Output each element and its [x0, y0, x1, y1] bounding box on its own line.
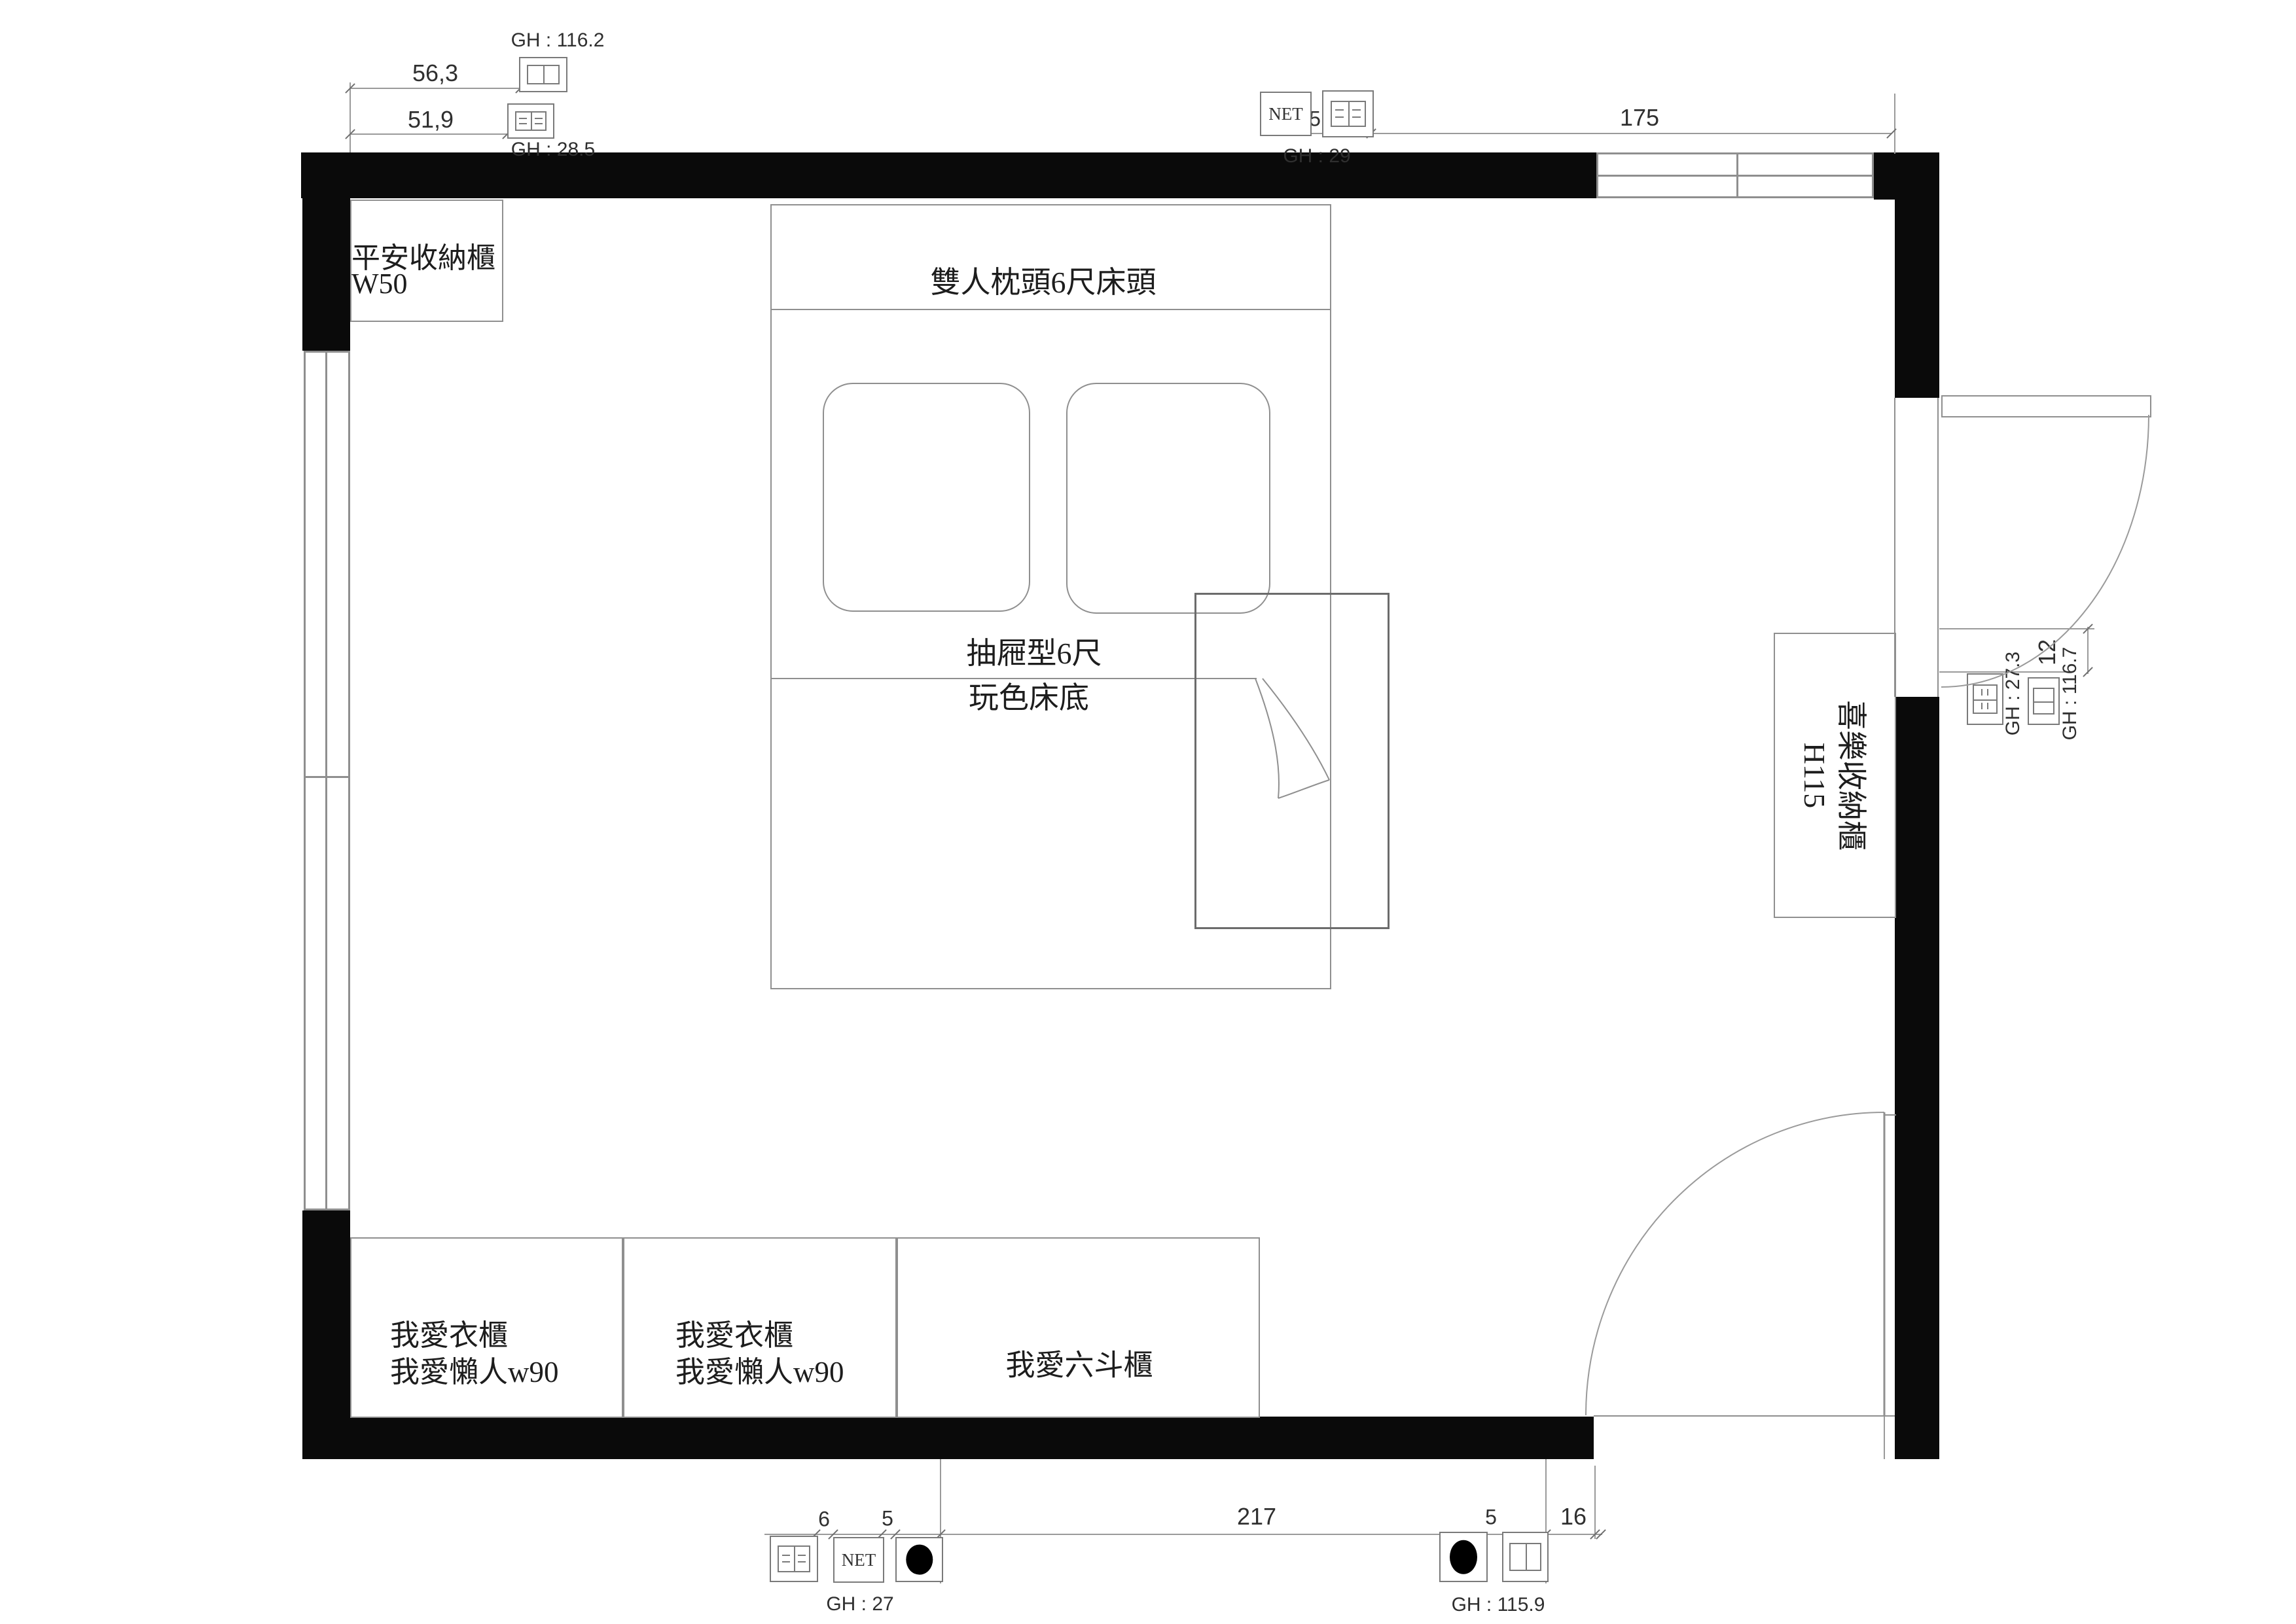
- top-left-cabinet-size: W50: [351, 267, 408, 300]
- door-bottom-swing-arc: [1586, 1112, 1884, 1415]
- window-top-edge: [1596, 152, 1874, 154]
- outlet-socket: [527, 65, 560, 84]
- door-bottom-threshold: [1594, 1415, 1895, 1417]
- outlet-socket: [515, 111, 547, 131]
- window-top-mid: [1596, 175, 1874, 177]
- window-top-jamb-left: [1596, 152, 1598, 198]
- dim-bottom-left-b: 5: [882, 1507, 893, 1531]
- net-port-box-icon: NET: [833, 1537, 884, 1583]
- label-gh-115-9: GH : 115.9: [1452, 1594, 1545, 1616]
- data-socket-icon: [1967, 673, 2003, 725]
- pillow-left: [823, 383, 1030, 612]
- outlet-socket: [778, 1545, 810, 1572]
- right-cabinet-name: 喜樂收納櫃: [1833, 700, 1869, 851]
- window-left-mullion: [304, 776, 350, 778]
- dresser: [897, 1237, 1260, 1418]
- dresser-label: 我愛六斗櫃: [1005, 1341, 1153, 1384]
- quilt-rect: [1194, 593, 1390, 929]
- ext-line-bottom-c: [1594, 1466, 1596, 1539]
- bed-base-label-line2: 玩色床底: [969, 674, 1089, 717]
- outlet-socket: [1509, 1543, 1541, 1572]
- dim-bottom-right-b: 16: [1560, 1503, 1587, 1530]
- data-socket-icon: [770, 1536, 818, 1582]
- headboard-label: 雙人枕頭6尺床頭: [931, 258, 1157, 302]
- dim-line-top-left-upper: [350, 88, 520, 89]
- dim-top-right-width: 175: [1620, 104, 1659, 132]
- right-cabinet-size: H115: [1796, 700, 1833, 851]
- label-gh-116-2: GH : 116.2: [511, 29, 605, 52]
- wall-left-upper: [302, 152, 350, 351]
- dim-line-top-left-lower: [350, 133, 507, 135]
- right-cabinet-label: 喜樂收納櫃 H115: [1796, 700, 1869, 851]
- dim-top-left-lower: 51,9: [408, 106, 454, 133]
- data-socket-icon: [507, 103, 554, 139]
- label-gh-29: GH : 29: [1283, 145, 1350, 168]
- power-outlet-duplex-icon: [1502, 1532, 1549, 1582]
- wall-top: [301, 152, 1596, 198]
- window-left-inner: [348, 351, 350, 1210]
- dim-bottom-right-a: 5: [1485, 1506, 1497, 1530]
- data-socket-icon: [1322, 90, 1374, 137]
- pillow-right: [1066, 383, 1270, 614]
- door-top-right-leaf: [1941, 395, 2151, 417]
- window-left-sill: [304, 1209, 350, 1210]
- net-port-label: NET: [842, 1550, 876, 1570]
- dim-top-left-upper: 56,3: [412, 60, 458, 87]
- wardrobe-1-line2: 我愛懶人w90: [390, 1348, 559, 1390]
- label-gh-27: GH : 27: [826, 1593, 893, 1615]
- label-gh-28-5: GH : 28.5: [511, 139, 595, 161]
- dim-bottom-span: 217: [1237, 1503, 1276, 1530]
- window-left-head: [304, 351, 350, 353]
- label-gh-116-7: GH : 116.7: [2059, 647, 2081, 741]
- outlet-socket: [1973, 684, 1997, 714]
- wardrobe-2-line2: 我愛懶人w90: [675, 1348, 844, 1390]
- ext-line-top-left: [350, 82, 351, 152]
- headboard-line: [770, 309, 1330, 310]
- bed-base-label-line1: 抽屜型6尺: [967, 629, 1102, 673]
- window-top-inner: [1596, 196, 1874, 198]
- light-point-dot: [906, 1544, 933, 1575]
- wall-top-right-corner: [1874, 152, 1939, 200]
- window-top-mullion: [1736, 152, 1738, 198]
- label-gh-27-3: GH : 27.3: [2002, 652, 2024, 735]
- window-top-jamb-right: [1872, 152, 1874, 198]
- window-left-outer: [304, 351, 306, 1210]
- light-point-icon: [895, 1537, 943, 1582]
- outlet-socket: [2033, 688, 2054, 715]
- power-outlet-duplex-icon: [519, 57, 567, 92]
- light-point-icon: [1439, 1532, 1488, 1582]
- dim-line-right-a: [1939, 628, 2094, 629]
- wall-right-upper: [1895, 198, 1939, 398]
- floor-plan-canvas: 56,3 51,9 GH : 116.2 GH : 28.5 5 175 GH …: [0, 0, 2296, 1624]
- dim-right-gap: 12: [2034, 639, 2061, 665]
- net-port-label: NET: [1268, 104, 1302, 124]
- dim-bottom-left-a: 6: [818, 1508, 830, 1532]
- net-port-box-icon: NET: [1260, 92, 1312, 136]
- power-outlet-duplex-icon: [2028, 677, 2060, 725]
- door-top-right-jamb-outer: [1937, 398, 1939, 697]
- ext-line-top-right: [1894, 94, 1895, 154]
- window-left-mid: [325, 351, 327, 1210]
- dim-line-right-v: [2087, 627, 2089, 674]
- light-point-dot: [1450, 1540, 1477, 1574]
- outlet-socket: [1331, 101, 1366, 128]
- wall-right-lower: [1895, 697, 1939, 1459]
- wall-bottom: [302, 1417, 1594, 1459]
